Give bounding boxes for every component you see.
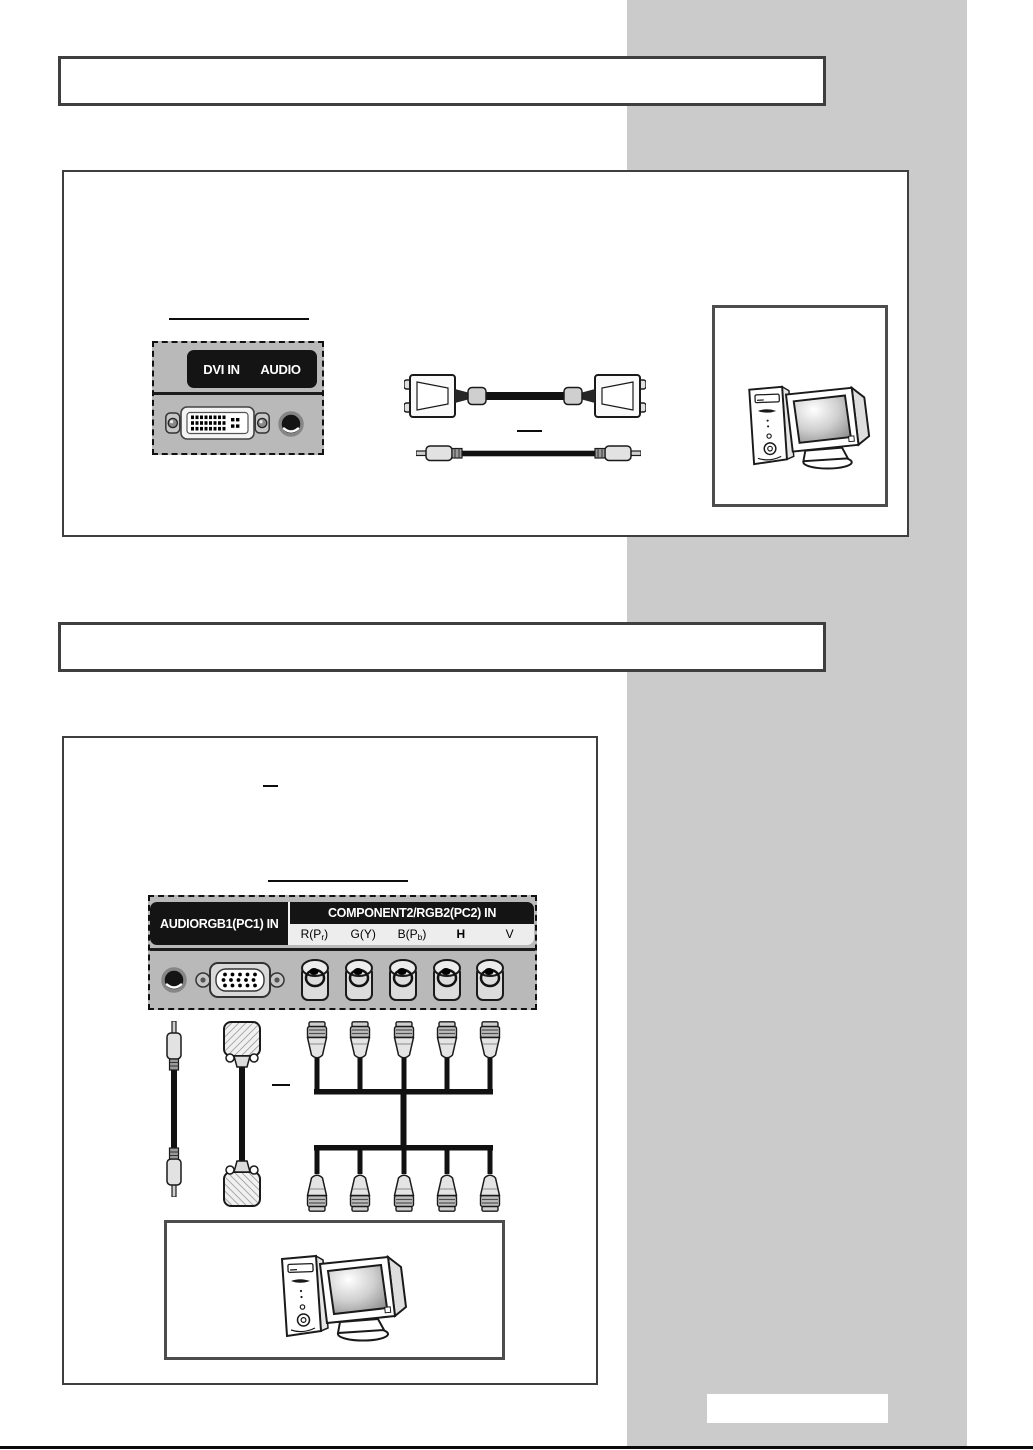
bnc-jack-b-icon — [387, 957, 419, 1003]
component-label-column: COMPONENT2/RGB2(PC2) IN R(Pr) G(Y) B(Pb)… — [290, 902, 534, 945]
bnc-harness-cable-illustration — [300, 1020, 510, 1214]
rgb1-pc1-in-label: RGB1(PC1) IN — [199, 917, 279, 931]
bnc-jack-r-icon — [299, 957, 331, 1003]
bnc-jack-v-icon — [474, 957, 506, 1003]
rca-audio-cable-illustration — [416, 443, 641, 464]
vga-connector-icon — [194, 960, 286, 1000]
dvi-connection-section: DVI IN AUDIO — [62, 170, 909, 537]
underline-or — [517, 430, 542, 432]
audio-label: AUDIO — [260, 362, 300, 377]
underline-word — [263, 785, 278, 787]
label-v: V — [485, 927, 534, 942]
audio-rgb-component-input-panel: AUDIO RGB1(PC1) IN COMPONENT2/RGB2(PC2) … — [148, 895, 537, 1010]
underline-or — [272, 1084, 290, 1086]
label-g-y: G(Y) — [339, 927, 388, 942]
bnc-sublabel-row: R(Pr) G(Y) B(Pb) H V — [290, 924, 534, 945]
panel-separator — [150, 948, 535, 951]
panel-label-strip: AUDIO RGB1(PC1) IN COMPONENT2/RGB2(PC2) … — [150, 902, 534, 945]
computer-illustration — [728, 376, 873, 473]
underline-dvi-heading — [169, 318, 309, 320]
computer-illustration — [260, 1245, 410, 1345]
component-rgb-connection-section: AUDIO RGB1(PC1) IN COMPONENT2/RGB2(PC2) … — [62, 736, 598, 1385]
computer-box — [164, 1220, 505, 1360]
dvi-cable-illustration — [404, 372, 646, 420]
dvi-panel-label-bar: DVI IN AUDIO — [187, 350, 317, 388]
label-h: H — [436, 927, 485, 942]
page-footer-label-box — [707, 1394, 888, 1423]
audio-label: AUDIO — [160, 917, 199, 931]
bnc-jack-h-icon — [431, 957, 463, 1003]
label-r-pr: R(Pr) — [290, 927, 339, 942]
audio-jack-icon — [276, 409, 306, 439]
dvi-in-label: DVI IN — [203, 362, 239, 377]
section-title-box-1 — [58, 56, 826, 106]
audio-jack-icon — [159, 965, 189, 995]
audio-rgb1-label-bar: AUDIO RGB1(PC1) IN — [150, 902, 290, 945]
component2-rgb2-header: COMPONENT2/RGB2(PC2) IN — [290, 902, 534, 924]
vga-cable-illustration — [219, 1021, 265, 1207]
manual-page: DVI IN AUDIO — [0, 0, 1033, 1450]
panel-separator — [154, 392, 322, 395]
dvi-connector-icon — [165, 405, 270, 441]
rca-audio-cable-illustration — [163, 1021, 185, 1197]
dvi-audio-input-panel: DVI IN AUDIO — [152, 341, 324, 455]
page-bottom-rule — [0, 1446, 1033, 1449]
section-title-box-2 — [58, 622, 826, 672]
label-b-pb: B(Pb) — [388, 927, 437, 942]
bnc-jack-g-icon — [343, 957, 375, 1003]
underline-heading — [268, 880, 408, 882]
computer-box — [712, 305, 888, 507]
